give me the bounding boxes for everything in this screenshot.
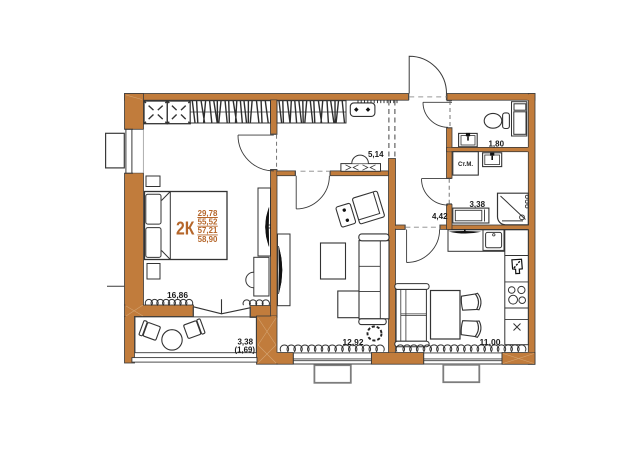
svg-text:4,42: 4,42 — [432, 211, 448, 221]
svg-text:Ст.М.: Ст.М. — [458, 162, 473, 168]
svg-text:11,00: 11,00 — [480, 337, 501, 347]
svg-text:2К: 2К — [176, 219, 195, 239]
svg-text:5,14: 5,14 — [368, 149, 384, 159]
svg-text:(1,69): (1,69) — [235, 345, 256, 355]
svg-text:16,86: 16,86 — [167, 290, 188, 300]
svg-text:3,38: 3,38 — [470, 199, 486, 209]
svg-text:12,92: 12,92 — [343, 337, 364, 347]
svg-text:58,90: 58,90 — [198, 234, 218, 244]
svg-text:1,80: 1,80 — [489, 138, 505, 148]
